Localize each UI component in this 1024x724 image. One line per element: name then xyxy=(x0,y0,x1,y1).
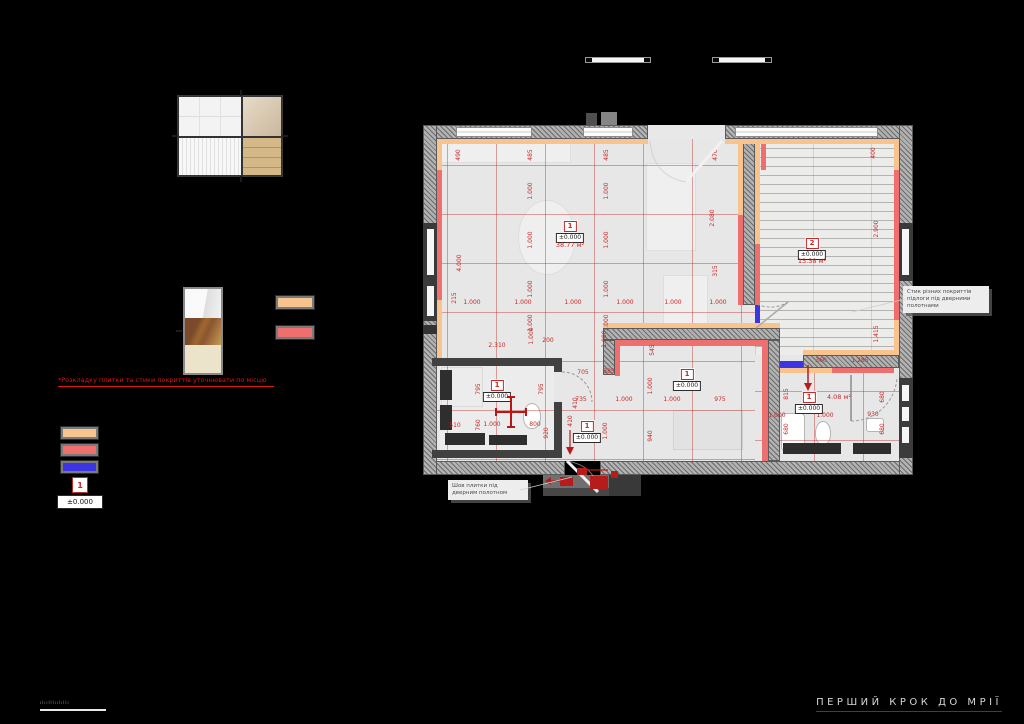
dim-label: 1.000 xyxy=(616,300,633,306)
dim-label: 2.900 xyxy=(874,220,880,237)
dim-label: 1.000 xyxy=(528,231,534,248)
dim-label: 815 xyxy=(784,388,790,399)
room-elevation: ±0.000 xyxy=(573,433,601,443)
room-number: 1 xyxy=(681,369,694,380)
tick-mark xyxy=(240,176,242,182)
wall-pier xyxy=(586,113,597,125)
dim-label: 975 xyxy=(714,397,725,403)
dim-label: 1.000 xyxy=(663,397,680,403)
dim-label: 215 xyxy=(452,292,458,303)
legend-swatch-blue xyxy=(61,461,98,473)
room-number: 1 xyxy=(803,392,816,403)
swatch-skirting-orange xyxy=(276,296,314,309)
dim-label: 1.000 xyxy=(604,280,610,297)
dim-label: 800 xyxy=(529,422,540,428)
wall-pier xyxy=(601,112,617,125)
finish-junction-photo xyxy=(183,287,223,375)
room-label: 1±0.000 xyxy=(573,421,601,443)
dim-label: 705 xyxy=(577,370,588,376)
room-number: 2 xyxy=(806,238,819,249)
photo-tile-part xyxy=(185,289,221,318)
floor-plan: 4904854854704001.0001.0001.0001.0001.000… xyxy=(423,125,913,475)
legend-elevation-box: ±0.000 xyxy=(57,495,103,509)
dim-label: 1.415 xyxy=(874,325,880,342)
room-number: 1 xyxy=(564,221,577,232)
dim-label: 1.000 xyxy=(564,300,581,306)
dim-label: 510 xyxy=(449,423,460,429)
room-number: 1 xyxy=(581,421,594,432)
dim-label: 1.000 xyxy=(528,182,534,199)
dim-label: 1.000 xyxy=(604,231,610,248)
room-area: 38.77 м² xyxy=(556,241,584,249)
dim-label: 490 xyxy=(456,149,462,160)
room-label: 1±0.000 xyxy=(556,221,584,243)
photo-wood-part xyxy=(185,318,221,346)
dim-label: 360 xyxy=(815,358,826,364)
legend-swatch-orange xyxy=(61,427,98,439)
dim-label: 1.000 xyxy=(528,280,534,297)
dim-label: 1.000 xyxy=(604,182,610,199)
dim-label: 485 xyxy=(604,149,610,160)
dim-label: 200 xyxy=(542,338,553,344)
dim-label: 680 xyxy=(784,423,790,434)
callout-junction: Стик різних покриттів підлоги під дверни… xyxy=(903,286,989,313)
page: { "page": {"bg": "#000000"}, "colors": {… xyxy=(0,0,1024,724)
dim-label: 1.000 xyxy=(514,300,531,306)
scale-bar xyxy=(712,57,772,63)
materials-board xyxy=(178,96,282,176)
dim-label: 1.000 xyxy=(603,422,609,439)
callout-tile-seam: Шов плитки під дверним полотном xyxy=(448,480,528,500)
legend-room-index-box: 1 xyxy=(72,477,88,493)
dim-label: 1.000 xyxy=(463,300,480,306)
dim-label: 1.285 xyxy=(851,358,868,364)
dim-label: 485 xyxy=(528,149,534,160)
room-number: 1 xyxy=(491,380,504,391)
dim-label: 1.000 xyxy=(615,397,632,403)
room-label: 1±0.000 xyxy=(483,380,511,402)
dim-label: 1.000 xyxy=(768,413,785,419)
swatch-skirting-red xyxy=(276,326,314,339)
material-stone xyxy=(242,96,282,137)
dim-label: 795 xyxy=(539,383,545,394)
material-tile-large xyxy=(178,96,242,137)
dim-label: 1.000 xyxy=(529,327,535,344)
dim-label: 795 xyxy=(476,383,482,394)
dim-label: 315 xyxy=(713,265,719,276)
tick-mark xyxy=(282,135,288,137)
room-elevation: ±0.000 xyxy=(795,404,823,414)
dim-label: 680 xyxy=(880,391,886,402)
dim-label: 4.000 xyxy=(457,254,463,271)
room-area: 13.38 м² xyxy=(798,257,826,265)
dim-label: 920 xyxy=(544,427,550,438)
room-label: 1±0.000 xyxy=(795,392,823,414)
tick-mark xyxy=(176,330,182,332)
dim-label: 2.080 xyxy=(710,209,716,226)
dim-label: 940 xyxy=(648,430,654,441)
dim-label: 680 xyxy=(880,423,886,434)
note-red: *Розкладку плитки та стики покриттів уто… xyxy=(58,376,274,387)
dim-label: 2.310 xyxy=(488,343,505,349)
room-area: 4.08 м² xyxy=(827,393,851,401)
dim-label: 470 xyxy=(713,149,719,160)
dim-label: 930 xyxy=(867,412,878,418)
dim-label: 400 xyxy=(871,147,877,158)
dim-label: 760 xyxy=(476,419,482,430)
watermark-illegible: ılıılllıılıllı xyxy=(40,700,70,705)
brand-slogan: ПЕРШИЙ КРОК ДО МРІЇ xyxy=(816,697,1002,712)
dim-label: 1.000 xyxy=(602,330,608,347)
dim-label: 385 xyxy=(603,369,614,375)
dim-label: 1.000 xyxy=(483,422,500,428)
material-tile-slat xyxy=(178,137,242,176)
room-label: 1±0.000 xyxy=(673,369,701,391)
dim-label: 1.000 xyxy=(604,314,610,331)
dim-label: 545 xyxy=(650,344,656,355)
room-elevation: ±0.000 xyxy=(673,381,701,391)
dim-label: 735 xyxy=(575,397,586,403)
tick-mark xyxy=(240,90,242,96)
dim-label: 1.000 xyxy=(648,377,654,394)
tick-mark xyxy=(172,135,178,137)
watermark-underline xyxy=(40,709,106,711)
photo-floor-part xyxy=(185,345,221,373)
dim-label: 1.000 xyxy=(709,300,726,306)
dim-label: 1.000 xyxy=(664,300,681,306)
legend-swatch-red xyxy=(61,444,98,456)
plan-annotations: 4904854854704001.0001.0001.0001.0001.000… xyxy=(423,125,913,475)
material-wood xyxy=(242,137,282,176)
room-elevation: ±0.000 xyxy=(483,392,511,402)
entrance-step xyxy=(609,475,641,496)
scale-bar xyxy=(585,57,651,63)
